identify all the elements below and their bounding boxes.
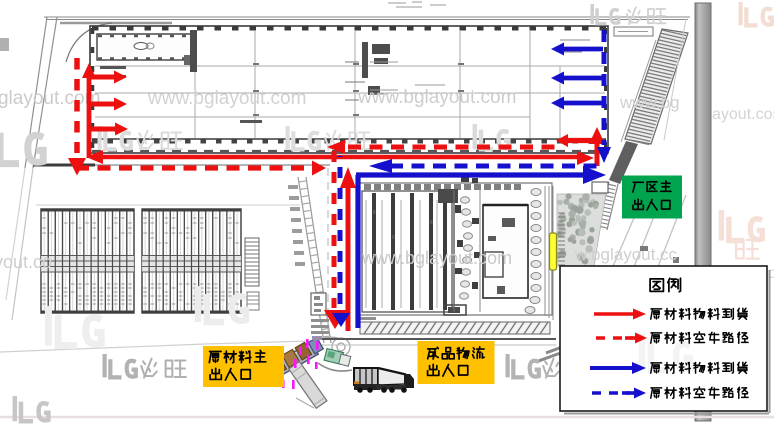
svg-text:www.bg: www.bg bbox=[619, 93, 680, 112]
svg-text:www.bglayout.com: www.bglayout.com bbox=[361, 248, 512, 268]
svg-text:w.bglayout.cc: w.bglayout.cc bbox=[574, 245, 678, 264]
svg-text:layout.co: layout.co bbox=[0, 252, 52, 272]
svg-text:www.bglayout.com: www.bglayout.com bbox=[0, 88, 100, 109]
svg-text:ayout.con: ayout.con bbox=[712, 106, 774, 123]
svg-text:www.bglayout.com: www.bglayout.com bbox=[357, 87, 516, 108]
svg-text:www.bglayout.com: www.bglayout.com bbox=[147, 88, 306, 109]
